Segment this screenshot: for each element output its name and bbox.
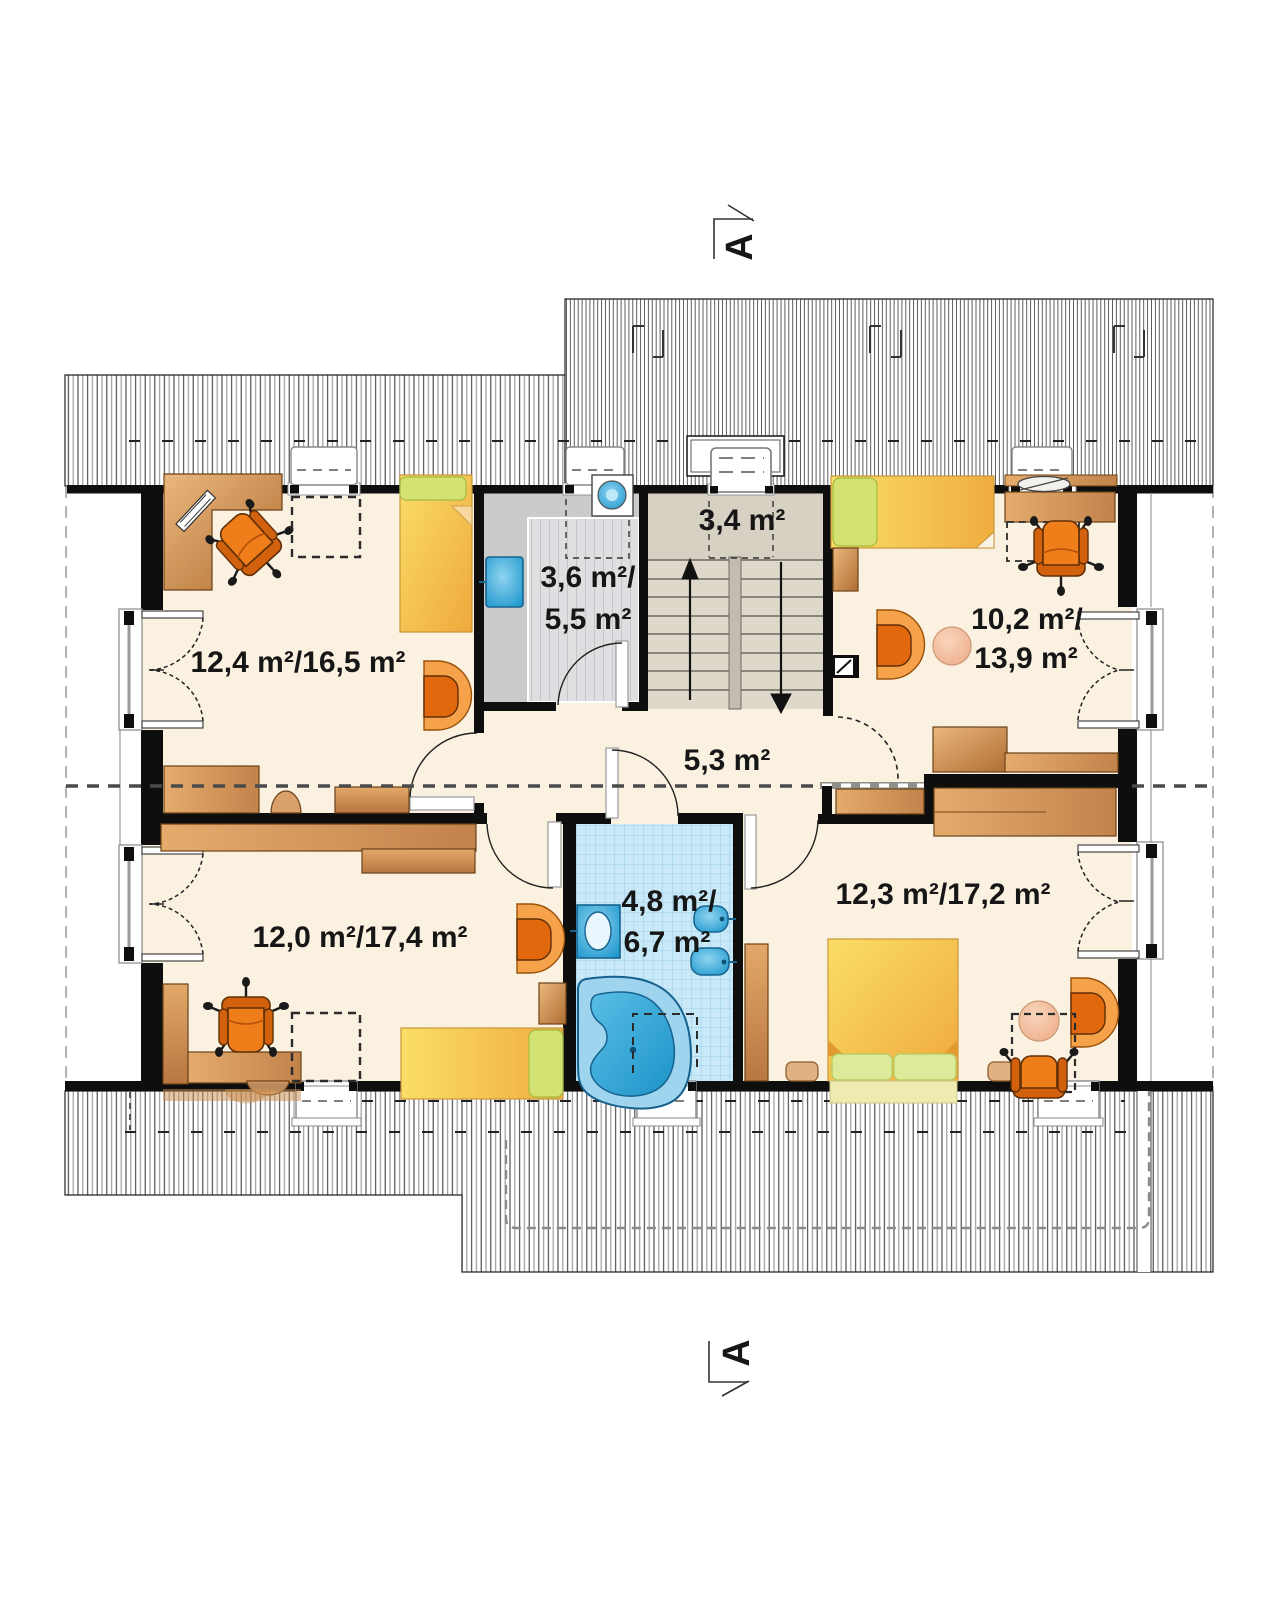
svg-text:13,9 m²: 13,9 m² [974, 642, 1077, 675]
svg-text:6,7 m²: 6,7 m² [624, 926, 711, 959]
svg-text:5,3 m²: 5,3 m² [684, 744, 771, 777]
svg-text:A: A [716, 1339, 758, 1366]
svg-text:12,3 m²/17,2 m²: 12,3 m²/17,2 m² [835, 878, 1050, 911]
svg-text:3,6 m²/: 3,6 m²/ [540, 561, 636, 594]
svg-text:12,4 m²/16,5 m²: 12,4 m²/16,5 m² [190, 646, 405, 679]
svg-text:12,0 m²/17,4 m²: 12,0 m²/17,4 m² [252, 921, 467, 954]
svg-text:3,4 m²: 3,4 m² [699, 504, 786, 537]
svg-text:A: A [719, 233, 761, 260]
svg-text:4,8 m²/: 4,8 m²/ [621, 885, 717, 918]
svg-text:5,5 m²: 5,5 m² [545, 603, 632, 636]
svg-text:10,2 m²/: 10,2 m²/ [971, 603, 1083, 636]
